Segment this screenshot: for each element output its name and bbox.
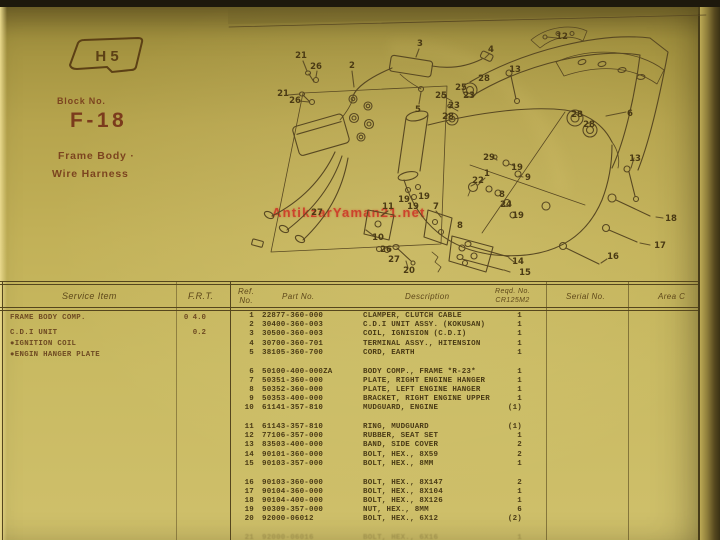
parts-qty-cell: 6 xyxy=(480,506,522,514)
parts-part-cell: 30700-360-701 xyxy=(262,340,323,348)
col-header-description: Description xyxy=(405,292,449,301)
parts-qty-cell: 1 xyxy=(480,340,522,348)
parts-desc-cell: BOLT, HEX., 8X126 xyxy=(363,497,443,505)
parts-row: 1383503-400-000BAND, SIDE COVER2 xyxy=(228,441,698,450)
parts-desc-cell: CLAMPER, CLUTCH CABLE xyxy=(363,312,462,320)
parts-desc-cell: MUDGUARD, ENGINE xyxy=(363,404,438,412)
callout-number: 23 xyxy=(448,101,460,111)
service-item-cell: ●ENGIN HANGER PLATE xyxy=(10,351,100,359)
callout-number: 28 xyxy=(571,110,583,120)
parts-part-cell: 61141-357-810 xyxy=(262,404,323,412)
parts-ref-cell: 15 xyxy=(230,460,254,468)
col-header-reqd-no: Reqd. No. CR125M2 xyxy=(495,287,530,305)
ref-line1: Ref. xyxy=(238,287,254,296)
parts-ref-cell: 11 xyxy=(230,423,254,431)
parts-ref-cell: 6 xyxy=(230,368,254,376)
parts-ref-cell: 17 xyxy=(230,488,254,496)
parts-row: 750351-360-000PLATE, RIGHT ENGINE HANGER… xyxy=(228,377,698,386)
callout-number: 19 xyxy=(418,192,430,202)
callout-number: 13 xyxy=(629,154,641,164)
parts-ref-cell: 5 xyxy=(230,349,254,357)
parts-part-cell: 22877-360-000 xyxy=(262,312,323,320)
col-header-area: Area C xyxy=(658,292,685,301)
parts-ref-cell: 8 xyxy=(230,386,254,394)
parts-desc-cell: BOLT, HEX., 8X104 xyxy=(363,488,443,496)
parts-qty-cell: 1 xyxy=(480,349,522,357)
callout-number: 26 xyxy=(310,62,322,72)
parts-ref-cell: 1 xyxy=(230,312,254,320)
callout-number: 27 xyxy=(388,255,400,265)
callout-number: 12 xyxy=(556,32,568,42)
callout-number: 28 xyxy=(583,120,595,130)
parts-qty-cell: 1 xyxy=(480,460,522,468)
parts-desc-cell: CORD, EARTH xyxy=(363,349,415,357)
callout-number: 21 xyxy=(295,51,307,61)
service-item-cell: C.D.I UNIT xyxy=(10,329,57,337)
callout-number: 2 xyxy=(349,61,355,71)
parts-ref-cell: 20 xyxy=(230,515,254,523)
callout-number: 24 xyxy=(500,200,512,210)
parts-desc-cell: RING, MUDGUARD xyxy=(363,423,429,431)
parts-qty-cell: 1 xyxy=(480,497,522,505)
parts-desc-cell: C.D.I UNIT ASSY. (KOKUSAN) xyxy=(363,321,485,329)
callout-number: 6 xyxy=(627,109,633,119)
parts-part-cell: 90104-400-000 xyxy=(262,497,323,505)
callout-number: 5 xyxy=(415,105,421,115)
parts-qty-cell: 1 xyxy=(480,432,522,440)
parts-qty-cell: 1 xyxy=(480,377,522,385)
parts-part-cell: 50100-400-000ZA xyxy=(262,368,333,376)
parts-desc-cell: RUBBER, SEAT SET xyxy=(363,432,438,440)
parts-desc-cell: TERMINAL ASSY., HITENSION xyxy=(363,340,481,348)
callout-number: 1 xyxy=(484,169,490,179)
table-header-line2 xyxy=(0,310,698,311)
parts-row: 1790104-360-000BOLT, HEX., 8X1041 xyxy=(228,488,698,497)
col-header-service-item: Service Item xyxy=(62,291,117,301)
service-row: ●ENGIN HANGER PLATE xyxy=(0,351,228,361)
callout-number: 17 xyxy=(654,241,666,251)
table-top-line1 xyxy=(0,281,698,282)
parts-ref-cell: 13 xyxy=(230,441,254,449)
parts-qty-cell: 1 xyxy=(480,321,522,329)
callout-number: 8 xyxy=(457,221,463,231)
parts-part-cell: 90103-357-000 xyxy=(262,460,323,468)
callout-number: 7 xyxy=(433,202,439,212)
parts-part-cell: 90104-360-000 xyxy=(262,488,323,496)
callout-leaders xyxy=(288,37,663,272)
callout-number: 19 xyxy=(407,202,419,212)
callout-number: 25 xyxy=(435,91,447,101)
parts-ref-cell: 9 xyxy=(230,395,254,403)
parts-desc-cell: PLATE, RIGHT ENGINE HANGER xyxy=(363,377,485,385)
parts-desc-cell: BODY COMP., FRAME *R-23* xyxy=(363,368,476,376)
parts-part-cell: 38105-360-700 xyxy=(262,349,323,357)
callout-number: 16 xyxy=(607,252,619,262)
parts-ref-cell: 18 xyxy=(230,497,254,505)
parts-desc-cell: BOLT, HEX., 8X147 xyxy=(363,479,443,487)
parts-desc-cell: BOLT, HEX., 6X12 xyxy=(363,515,438,523)
parts-qty-cell: 1 xyxy=(480,312,522,320)
callout-number: 18 xyxy=(665,214,677,224)
callout-number: 19 xyxy=(511,163,523,173)
parts-part-cell: 83503-400-000 xyxy=(262,441,323,449)
parts-row: 1490101-360-000BOLT, HEX., 8X592 xyxy=(228,451,698,460)
parts-qty-cell: 1 xyxy=(480,386,522,394)
ref-line2: No. xyxy=(239,296,253,305)
callout-number: 3 xyxy=(417,39,423,49)
callout-number: 9 xyxy=(525,173,531,183)
service-row: C.D.I UNIT0.2 xyxy=(0,329,228,339)
parts-ref-cell: 19 xyxy=(230,506,254,514)
callout-number: 22 xyxy=(472,176,484,186)
callout-number: 26 xyxy=(380,245,392,255)
parts-desc-cell: BOLT, HEX., 8X59 xyxy=(363,451,438,459)
parts-qty-cell: 1 xyxy=(480,395,522,403)
service-item-cell: FRAME BODY COMP. xyxy=(10,314,86,322)
parts-row: 2092000-06012BOLT, HEX., 6X12(2) xyxy=(228,515,698,524)
parts-ref-cell: 16 xyxy=(230,479,254,487)
parts-desc-cell: BRACKET, RIGHT ENGINE UPPER xyxy=(363,395,490,403)
parts-row: 1061141-357-810MUDGUARD, ENGINE(1) xyxy=(228,404,698,413)
parts-row: 230400-360-003C.D.I UNIT ASSY. (KOKUSAN)… xyxy=(228,321,698,330)
parts-ref-cell: 7 xyxy=(230,377,254,385)
parts-row: 1690103-360-000BOLT, HEX., 8X1472 xyxy=(228,479,698,488)
parts-desc-cell: BOLT, HEX., 6X16 xyxy=(363,534,438,540)
callout-number: 8 xyxy=(499,190,505,200)
callout-number: 23 xyxy=(463,91,475,101)
parts-part-cell: 90101-360-000 xyxy=(262,451,323,459)
service-item-cell: ●IGNITION COIL xyxy=(10,340,76,348)
parts-row: 1277106-357-000RUBBER, SEAT SET1 xyxy=(228,432,698,441)
parts-desc-cell: COIL, IGNISION (C.D.I) xyxy=(363,330,466,338)
parts-part-cell: 30500-360-003 xyxy=(262,330,323,338)
callout-number: 15 xyxy=(519,268,531,278)
reqd-line1: Reqd. No. xyxy=(495,288,530,295)
service-row: ●IGNITION COIL xyxy=(0,340,228,350)
col-header-ref-no: Ref. No. xyxy=(238,287,254,305)
parts-row: 2192000-06016BOLT, HEX., 6X161 xyxy=(228,534,698,540)
parts-row: 1161143-357-810RING, MUDGUARD(1) xyxy=(228,423,698,432)
parts-row: 1990309-357-000NUT, HEX., 8MM6 xyxy=(228,506,698,515)
callout-number: 28 xyxy=(478,74,490,84)
parts-desc-cell: BOLT, HEX., 8MM xyxy=(363,460,434,468)
parts-part-cell: 77106-357-000 xyxy=(262,432,323,440)
parts-part-cell: 92000-06016 xyxy=(262,534,314,540)
parts-part-cell: 92000-06012 xyxy=(262,515,314,523)
callout-number: 20 xyxy=(403,266,415,276)
parts-row: 330500-360-003COIL, IGNISION (C.D.I)1 xyxy=(228,330,698,339)
service-row: FRAME BODY COMP.0 4.0 xyxy=(0,314,228,324)
callout-number: 10 xyxy=(372,233,384,243)
parts-row: 1890104-400-000BOLT, HEX., 8X1261 xyxy=(228,497,698,506)
callout-number: 29 xyxy=(483,153,495,163)
parts-qty-cell: 2 xyxy=(480,441,522,449)
parts-qty-cell: 1 xyxy=(480,488,522,496)
parts-desc-cell: BAND, SIDE COVER xyxy=(363,441,438,449)
col-header-frt: F.R.T. xyxy=(188,291,213,301)
parts-qty-cell: (2) xyxy=(480,515,522,523)
parts-part-cell: 30400-360-003 xyxy=(262,321,323,329)
col-header-part-no: Part No. xyxy=(282,292,315,301)
parts-ref-cell: 12 xyxy=(230,432,254,440)
parts-qty-cell: 1 xyxy=(480,368,522,376)
parts-desc-cell: NUT, HEX., 8MM xyxy=(363,506,429,514)
parts-ref-cell: 21 xyxy=(230,534,254,540)
col-header-serial-no: Serial No. xyxy=(566,292,605,301)
parts-part-cell: 90103-360-000 xyxy=(262,479,323,487)
callout-number: 28 xyxy=(442,112,454,122)
parts-qty-cell: 1 xyxy=(480,330,522,338)
parts-desc-cell: PLATE, LEFT ENGINE HANGER xyxy=(363,386,481,394)
reqd-line2: CR125M2 xyxy=(495,297,529,304)
parts-ref-cell: 3 xyxy=(230,330,254,338)
parts-ref-cell: 10 xyxy=(230,404,254,412)
callout-number: 14 xyxy=(512,257,524,267)
parts-part-cell: 50352-360-000 xyxy=(262,386,323,394)
parts-ref-cell: 4 xyxy=(230,340,254,348)
parts-qty-cell: (1) xyxy=(480,423,522,431)
parts-row: 950353-400-000BRACKET, RIGHT ENGINE UPPE… xyxy=(228,395,698,404)
parts-row: 1590103-357-000BOLT, HEX., 8MM1 xyxy=(228,460,698,469)
table-header-line1 xyxy=(0,307,698,308)
callout-number: 21 xyxy=(277,89,289,99)
parts-row: 538105-360-700CORD, EARTH1 xyxy=(228,349,698,358)
parts-qty-cell: 2 xyxy=(480,479,522,487)
parts-part-cell: 90309-357-000 xyxy=(262,506,323,514)
parts-row: 430700-360-701TERMINAL ASSY., HITENSION1 xyxy=(228,340,698,349)
parts-part-cell: 50353-400-000 xyxy=(262,395,323,403)
parts-qty-cell: 2 xyxy=(480,451,522,459)
parts-qty-cell: (1) xyxy=(480,404,522,412)
parts-ref-cell: 2 xyxy=(230,321,254,329)
parts-row: 850352-360-000PLATE, LEFT ENGINE HANGER1 xyxy=(228,386,698,395)
catalog-photo: H 5 Block No. F-18 Frame Body · Wire Har… xyxy=(0,0,720,540)
callout-number: 4 xyxy=(488,45,494,55)
callout-number: 11 xyxy=(382,202,394,212)
parts-row: 650100-400-000ZABODY COMP., FRAME *R-23*… xyxy=(228,368,698,377)
service-frt-cell: 0.2 xyxy=(193,329,206,337)
service-frt-cell: 0 4.0 xyxy=(184,314,206,322)
callout-number: 19 xyxy=(512,211,524,221)
callout-number: 13 xyxy=(509,65,521,75)
callout-number: 27 xyxy=(311,208,323,218)
parts-ref-cell: 14 xyxy=(230,451,254,459)
parts-qty-cell: 1 xyxy=(480,534,522,540)
parts-part-cell: 50351-360-000 xyxy=(262,377,323,385)
callout-number: 26 xyxy=(289,96,301,106)
parts-row: 122877-360-000CLAMPER, CLUTCH CABLE1 xyxy=(228,312,698,321)
table-top-line2 xyxy=(0,284,698,285)
parts-part-cell: 61143-357-810 xyxy=(262,423,323,431)
